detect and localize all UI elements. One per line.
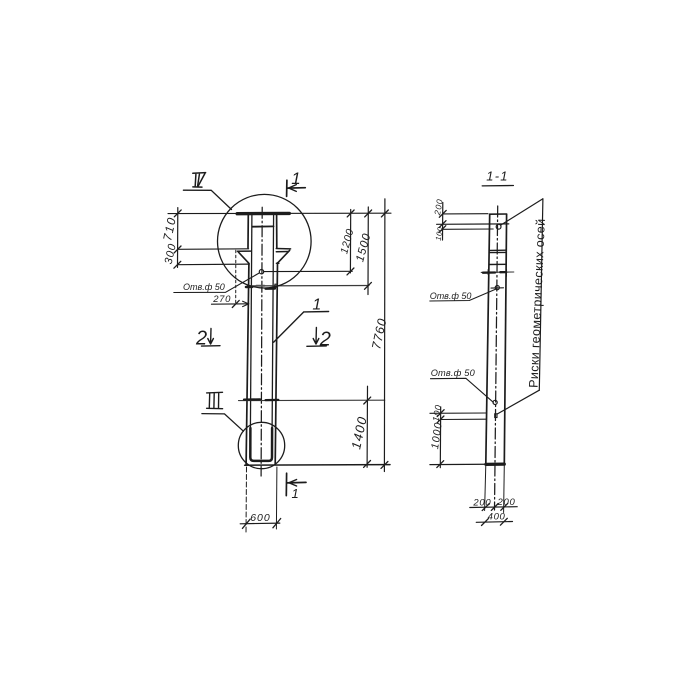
- svg-text:400: 400: [488, 512, 506, 523]
- svg-text:Отв.ф 50: Отв.ф 50: [183, 282, 225, 292]
- svg-text:200: 200: [497, 497, 516, 508]
- svg-text:200: 200: [472, 498, 491, 509]
- svg-text:Отв.ф 50: Отв.ф 50: [431, 368, 476, 378]
- svg-text:1-1: 1-1: [486, 168, 508, 183]
- svg-text:270: 270: [212, 294, 231, 305]
- svg-text:600: 600: [250, 512, 271, 524]
- svg-text:1: 1: [291, 169, 300, 188]
- svg-text:1: 1: [312, 296, 321, 313]
- svg-text:Отв.ф 50: Отв.ф 50: [430, 291, 472, 301]
- svg-text:1: 1: [292, 486, 299, 501]
- svg-text:2: 2: [319, 328, 331, 350]
